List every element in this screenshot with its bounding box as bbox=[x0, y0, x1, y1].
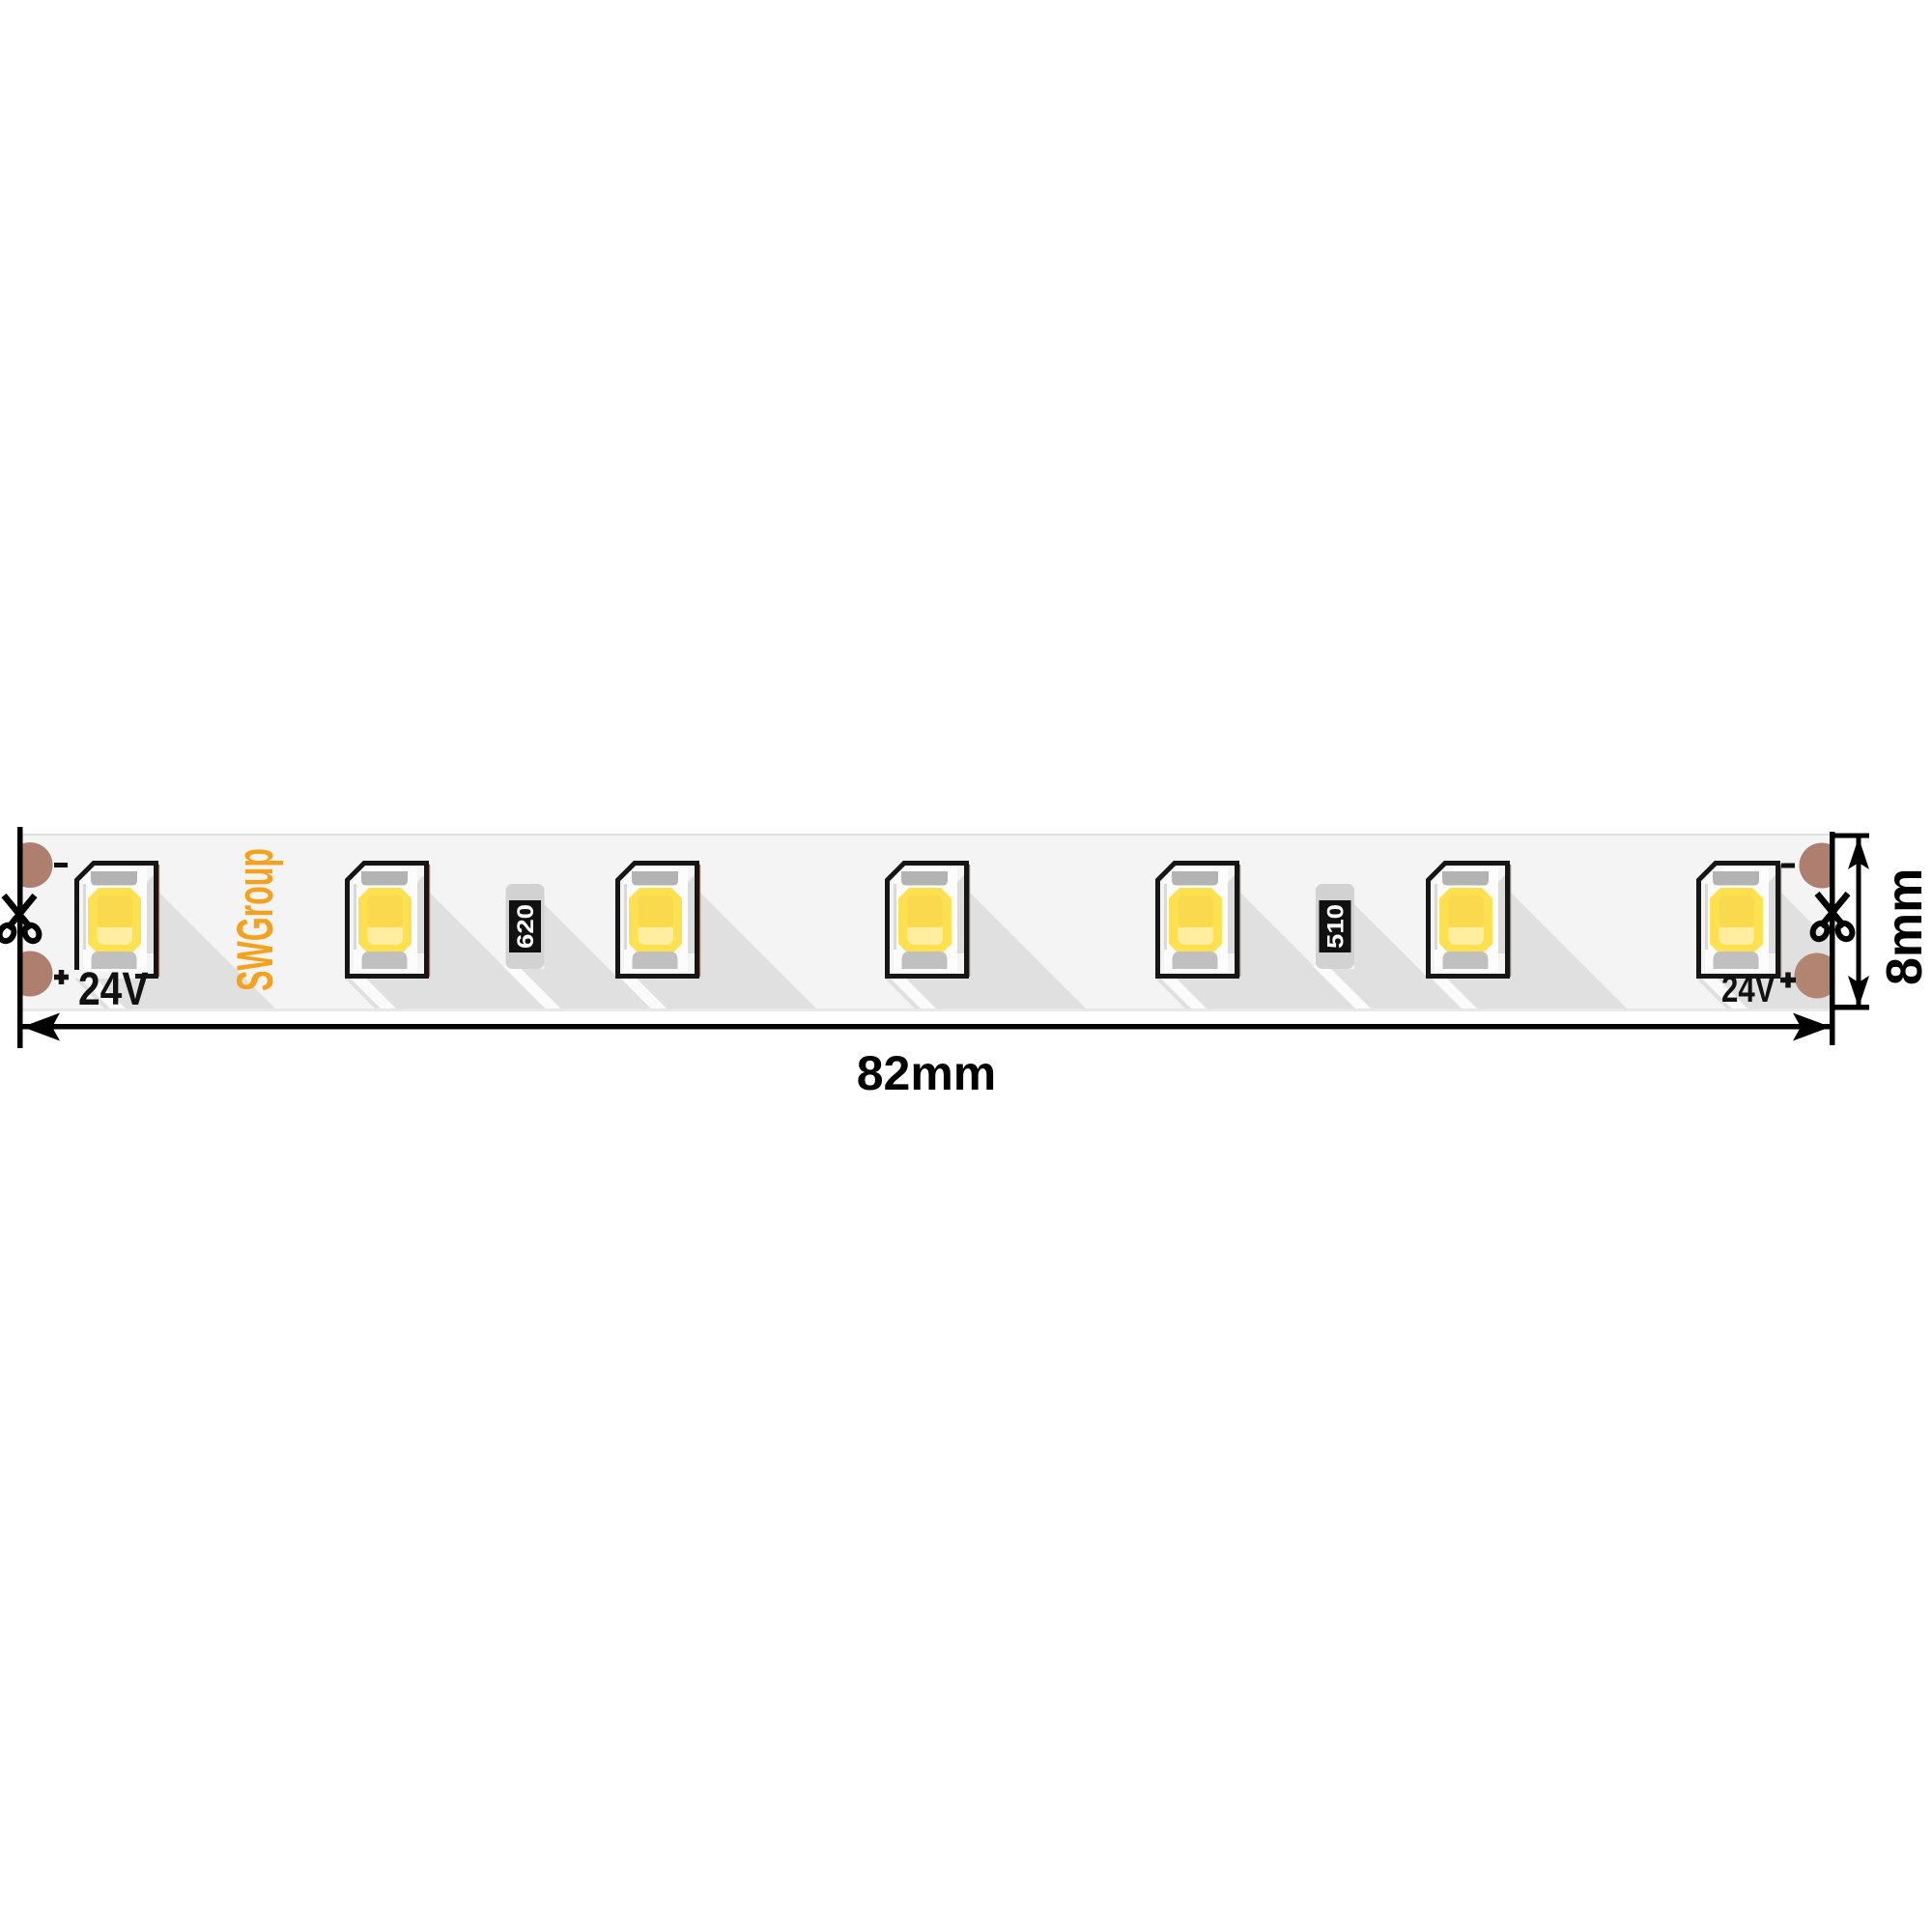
svg-text:82mm: 82mm bbox=[857, 1046, 997, 1100]
svg-text:SWGroup: SWGroup bbox=[227, 848, 284, 991]
svg-text:620: 620 bbox=[513, 904, 539, 949]
svg-text:24V: 24V bbox=[1721, 969, 1776, 1010]
svg-text:8mm: 8mm bbox=[1877, 868, 1932, 985]
svg-text:24V: 24V bbox=[78, 964, 149, 1015]
svg-text:510: 510 bbox=[1323, 904, 1350, 949]
